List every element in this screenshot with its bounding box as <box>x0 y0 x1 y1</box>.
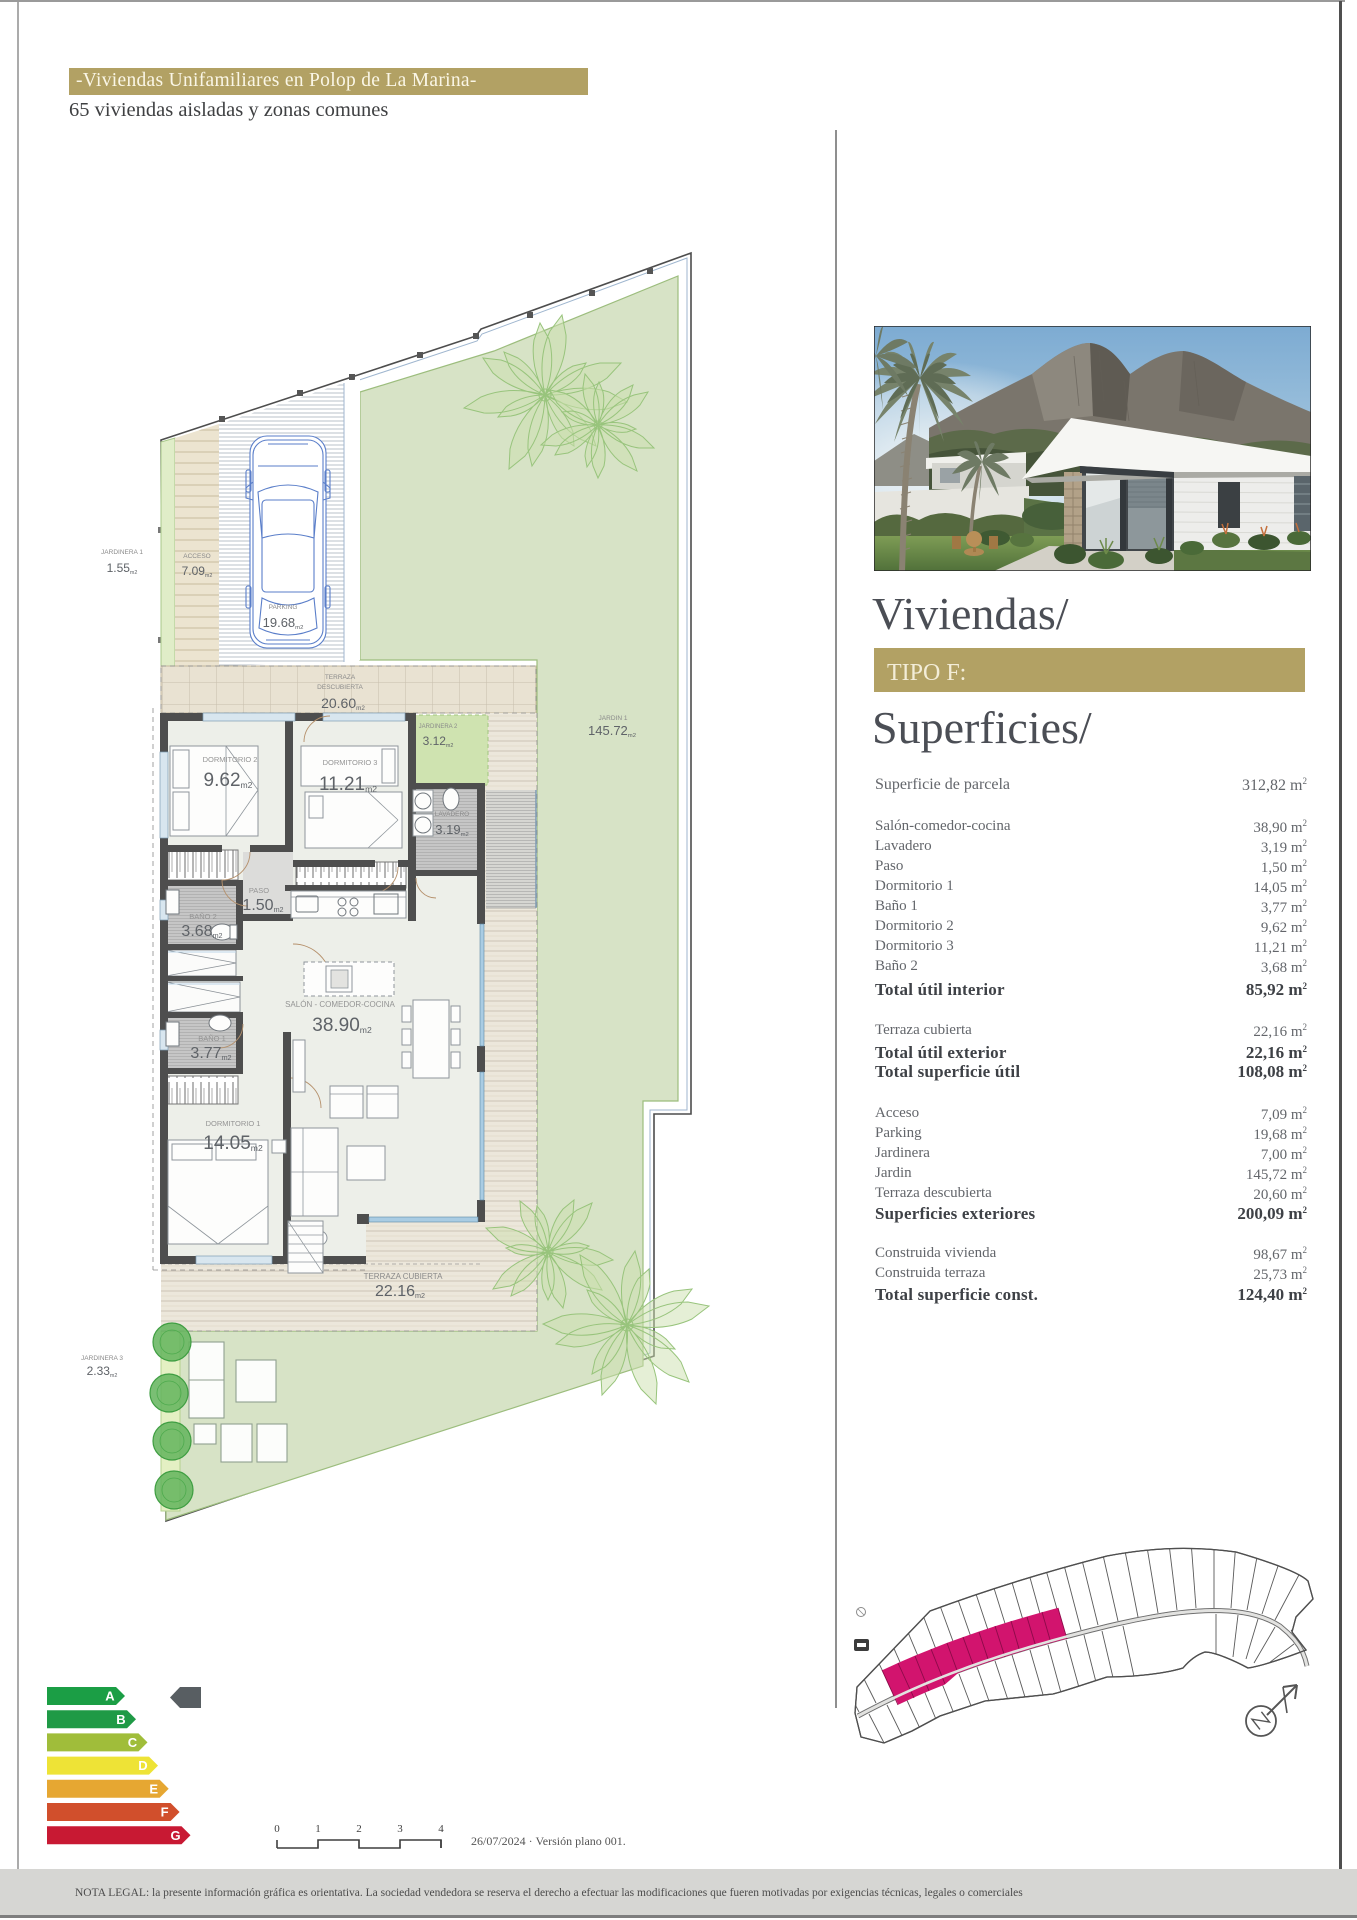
svg-text:2: 2 <box>356 1823 362 1835</box>
svg-text:26/07/2024 · Versión plano 001: 26/07/2024 · Versión plano 001. <box>471 1834 626 1848</box>
svg-text:PARKING: PARKING <box>269 604 298 611</box>
svg-text:C: C <box>128 1735 138 1750</box>
svg-text:0: 0 <box>274 1823 280 1835</box>
svg-text:TERRAZA CUBIERTA: TERRAZA CUBIERTA <box>364 1272 443 1281</box>
svg-text:B: B <box>116 1712 125 1727</box>
svg-text:TERRAZA: TERRAZA <box>325 674 356 681</box>
svg-text:E: E <box>149 1781 158 1796</box>
svg-text:G: G <box>170 1828 180 1843</box>
svg-text:A: A <box>105 1689 115 1704</box>
svg-text:2.33m2: 2.33m2 <box>87 1364 118 1379</box>
svg-text:D: D <box>138 1758 147 1773</box>
svg-text:DORMITORIO 2: DORMITORIO 2 <box>203 755 258 764</box>
svg-text:ACCESO: ACCESO <box>183 553 210 560</box>
svg-text:BAÑO 1: BAÑO 1 <box>198 1034 226 1043</box>
svg-text:F: F <box>161 1805 169 1820</box>
svg-text:JARDINERA 2: JARDINERA 2 <box>419 724 458 730</box>
svg-text:JARDINERA 3: JARDINERA 3 <box>81 1355 123 1362</box>
svg-text:JARDIN 1: JARDIN 1 <box>599 715 628 722</box>
svg-text:BAÑO 2: BAÑO 2 <box>189 912 217 921</box>
svg-text:JARDINERA 1: JARDINERA 1 <box>101 549 143 556</box>
svg-text:DESCUBIERTA: DESCUBIERTA <box>317 684 363 691</box>
svg-text:1: 1 <box>315 1823 321 1835</box>
svg-text:1.55m2: 1.55m2 <box>107 561 138 576</box>
svg-text:3: 3 <box>397 1823 403 1835</box>
svg-text:4: 4 <box>438 1823 444 1835</box>
svg-text:LAVADERO: LAVADERO <box>435 811 469 818</box>
svg-text:DORMITORIO 3: DORMITORIO 3 <box>323 758 378 767</box>
svg-text:PASO: PASO <box>249 886 269 895</box>
svg-text:SALÓN - COMEDOR-COCINA: SALÓN - COMEDOR-COCINA <box>285 1000 395 1009</box>
svg-text:DORMITORIO 1: DORMITORIO 1 <box>206 1119 261 1128</box>
